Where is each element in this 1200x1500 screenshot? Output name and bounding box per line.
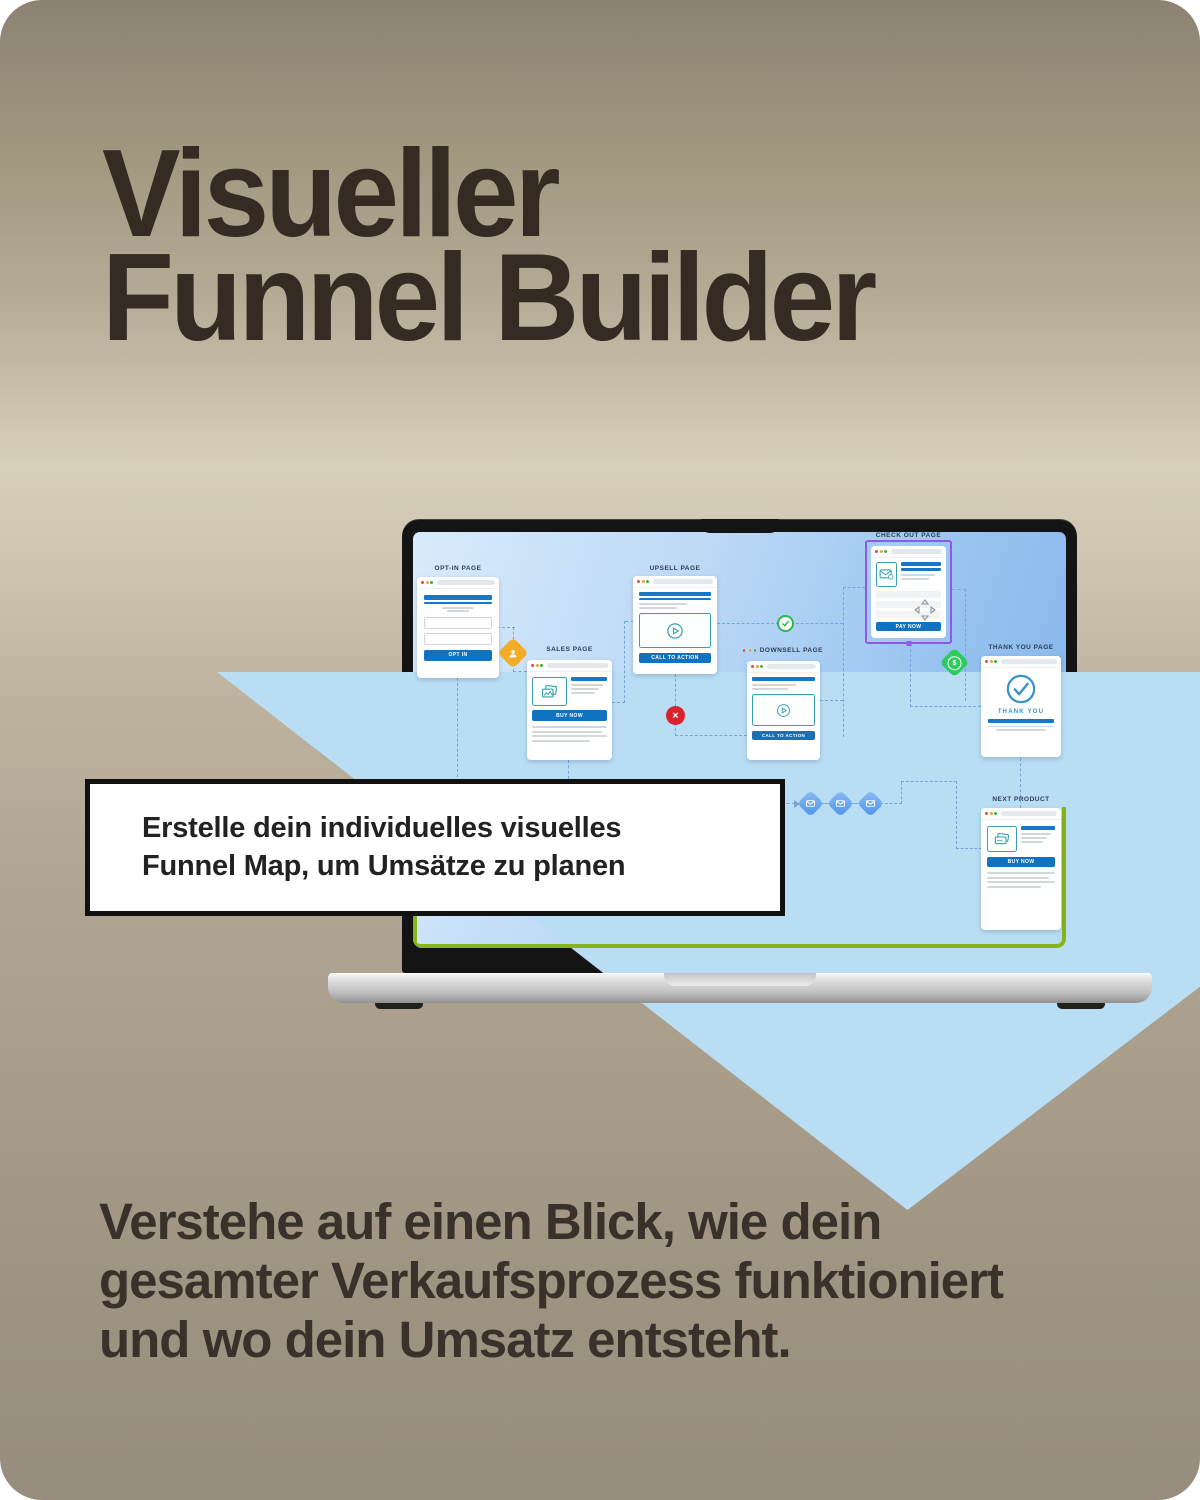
label-sales-page: SALES PAGE (527, 646, 612, 653)
upsell-page-card[interactable]: CALL TO ACTION (633, 576, 717, 674)
headline-placeholder (988, 719, 1054, 723)
call-to-action-button[interactable]: CALL TO ACTION (752, 731, 815, 740)
text-placeholder (752, 688, 788, 690)
address-bar (767, 664, 817, 669)
thank-you-page-card[interactable]: THANK YOU (981, 656, 1061, 757)
traffic-light-red-icon (421, 581, 424, 584)
label-thank-you-page: THANK YOU PAGE (981, 644, 1061, 651)
callout-line-1: Erstelle dein individuelles visuelles (142, 812, 780, 845)
downsell-page-card[interactable]: CALL TO ACTION (747, 661, 820, 760)
traffic-light-green-icon (760, 665, 763, 668)
connector-line (901, 782, 902, 804)
check-icon (781, 619, 790, 628)
traffic-light-green-icon (430, 581, 433, 584)
address-bar (547, 663, 609, 668)
headline-placeholder (424, 602, 492, 604)
connector-line (910, 706, 981, 707)
callout-box: Erstelle dein individuelles visuelles Fu… (85, 779, 785, 916)
connector-line (965, 589, 966, 701)
play-icon (776, 703, 791, 718)
connector-line (675, 735, 747, 736)
footer-line-1: Verstehe auf einen Blick, wie dein (99, 1192, 1003, 1251)
laptop-base (328, 973, 1152, 1003)
footer-text: Verstehe auf einen Blick, wie dein gesam… (99, 1192, 1003, 1369)
text-placeholder (532, 740, 590, 742)
video-placeholder[interactable] (639, 613, 711, 648)
text-placeholder (996, 729, 1046, 731)
text-placeholder (901, 578, 929, 580)
text-placeholder (532, 735, 607, 737)
selection-handle[interactable] (906, 641, 911, 646)
text-placeholder (1021, 841, 1043, 843)
traffic-light-yellow-icon (880, 550, 883, 553)
connector-line (457, 678, 458, 777)
traffic-light-yellow-icon (990, 660, 993, 663)
label-dot-yellow-icon (749, 649, 751, 652)
traffic-light-green-icon (646, 580, 649, 583)
traffic-light-red-icon (985, 812, 988, 815)
label-downsell-page: DOWNSELL PAGE (743, 647, 823, 654)
traffic-light-yellow-icon (536, 664, 539, 667)
laptop-notch (701, 519, 779, 533)
product-image-placeholder (987, 826, 1017, 852)
text-placeholder (532, 726, 607, 728)
person-icon (508, 648, 519, 659)
laptop-foot (1057, 1003, 1105, 1009)
connector-line (952, 589, 966, 590)
label-dot-green-icon (754, 649, 756, 652)
traffic-light-yellow-icon (642, 580, 645, 583)
headline-placeholder (639, 598, 711, 600)
success-check-circle-icon (1006, 674, 1036, 704)
label-next-product: NEXT PRODUCT (981, 796, 1061, 803)
connector-line (513, 671, 527, 672)
label-text: DOWNSELL PAGE (760, 647, 823, 654)
form-field-placeholder[interactable] (424, 617, 492, 629)
text-placeholder (571, 688, 599, 690)
text-placeholder (442, 607, 474, 609)
browser-bar (981, 808, 1061, 820)
label-dot-red-icon (743, 649, 745, 652)
connector-line (880, 803, 902, 804)
label-opt-in-page: OPT-IN PAGE (417, 565, 499, 572)
connector-line (820, 700, 843, 701)
address-bar (1001, 659, 1058, 664)
form-field-placeholder[interactable] (424, 633, 492, 645)
opt-in-page-card[interactable]: OPT IN (417, 577, 499, 678)
text-placeholder (901, 574, 935, 576)
text-placeholder (447, 610, 469, 612)
browser-bar (871, 546, 946, 558)
text-placeholder (1021, 837, 1047, 839)
buy-now-button[interactable]: BUY NOW (987, 857, 1055, 867)
connector-line (843, 587, 865, 588)
browser-bar (747, 661, 820, 673)
browser-bar (417, 577, 499, 589)
label-upsell-page: UPSELL PAGE (633, 565, 717, 572)
address-bar (1001, 811, 1058, 816)
headline-placeholder (752, 677, 815, 681)
connector-line (568, 760, 569, 779)
error-x-icon[interactable]: × (666, 706, 685, 725)
product-image-placeholder (876, 562, 897, 587)
text-placeholder (571, 692, 595, 694)
text-placeholder (639, 603, 687, 605)
traffic-light-red-icon (985, 660, 988, 663)
text-placeholder (987, 886, 1041, 888)
text-placeholder (988, 726, 1054, 728)
browser-bar (633, 576, 717, 588)
connector-line (675, 674, 676, 736)
address-bar (653, 579, 714, 584)
checkout-page-card[interactable]: PAY NOW (871, 546, 946, 638)
lead-person-icon[interactable] (497, 637, 528, 668)
traffic-light-green-icon (884, 550, 887, 553)
traffic-light-yellow-icon (990, 812, 993, 815)
headline-placeholder (571, 677, 607, 681)
mail-image-icon (879, 569, 894, 580)
connector-line (901, 781, 957, 782)
checkout-selection-outline[interactable]: PAY NOW (865, 540, 952, 644)
traffic-light-green-icon (994, 660, 997, 663)
sales-page-card[interactable]: BUY NOW (527, 660, 612, 760)
traffic-light-yellow-icon (756, 665, 759, 668)
connector-line (843, 587, 844, 737)
connector-line (956, 781, 957, 849)
pay-now-button[interactable]: PAY NOW (876, 622, 941, 631)
success-check-icon[interactable] (777, 615, 794, 632)
footer-line-2: gesamter Verkaufsprozess funktioniert (99, 1251, 1003, 1310)
text-placeholder (571, 684, 603, 686)
text-placeholder (1021, 833, 1051, 835)
text-placeholder (752, 684, 796, 686)
text-placeholder (639, 607, 677, 609)
buy-now-button[interactable]: BUY NOW (532, 710, 607, 721)
play-icon (666, 622, 684, 640)
traffic-light-red-icon (637, 580, 640, 583)
headline-placeholder (424, 595, 492, 600)
traffic-light-red-icon (751, 665, 754, 668)
laptop-foot (375, 1003, 423, 1009)
move-handle-icon[interactable] (913, 598, 937, 622)
connector-line (624, 621, 625, 703)
traffic-light-green-icon (994, 812, 997, 815)
laptop-lid-scoop (664, 973, 816, 986)
envelope-icon (866, 800, 875, 807)
poster-card: Visueller Funnel Builder (0, 0, 1200, 1500)
browser-bar (981, 656, 1061, 668)
traffic-light-green-icon (540, 664, 543, 667)
opt-in-button[interactable]: OPT IN (424, 650, 492, 661)
thank-you-message: THANK YOU (987, 709, 1055, 715)
connector-line (910, 644, 911, 707)
footer-line-3: und wo dein Umsatz entsteht. (99, 1310, 1003, 1369)
envelope-icon (806, 800, 815, 807)
browser-bar (527, 660, 612, 672)
text-placeholder (532, 731, 602, 733)
traffic-light-yellow-icon (426, 581, 429, 584)
page-title: Visueller Funnel Builder (102, 142, 873, 350)
product-image-placeholder (532, 677, 567, 706)
connector-line (956, 848, 982, 849)
connector-line (612, 702, 625, 703)
callout-line-2: Funnel Map, um Umsätze zu planen (142, 850, 780, 883)
photo-stack-icon (541, 685, 558, 699)
video-placeholder[interactable] (752, 694, 815, 726)
title-line-2: Funnel Builder (102, 246, 873, 350)
envelope-icon (836, 800, 845, 807)
headline-placeholder (901, 568, 941, 572)
address-bar (891, 549, 943, 554)
text-placeholder (987, 881, 1055, 883)
text-placeholder (987, 877, 1049, 879)
traffic-light-red-icon (531, 664, 534, 667)
address-bar (437, 580, 496, 585)
traffic-light-red-icon (875, 550, 878, 553)
next-product-card[interactable]: BUY NOW (981, 808, 1061, 930)
form-row-placeholder (876, 591, 941, 598)
call-to-action-button[interactable]: CALL TO ACTION (639, 653, 711, 663)
headline-placeholder (901, 562, 941, 566)
label-check-out-page: CHECK OUT PAGE (865, 532, 952, 539)
cards-stack-icon (994, 833, 1010, 845)
text-placeholder (987, 872, 1055, 874)
dollar-sign: $ (948, 656, 962, 670)
headline-placeholder (1021, 826, 1055, 830)
headline-placeholder (639, 592, 711, 596)
